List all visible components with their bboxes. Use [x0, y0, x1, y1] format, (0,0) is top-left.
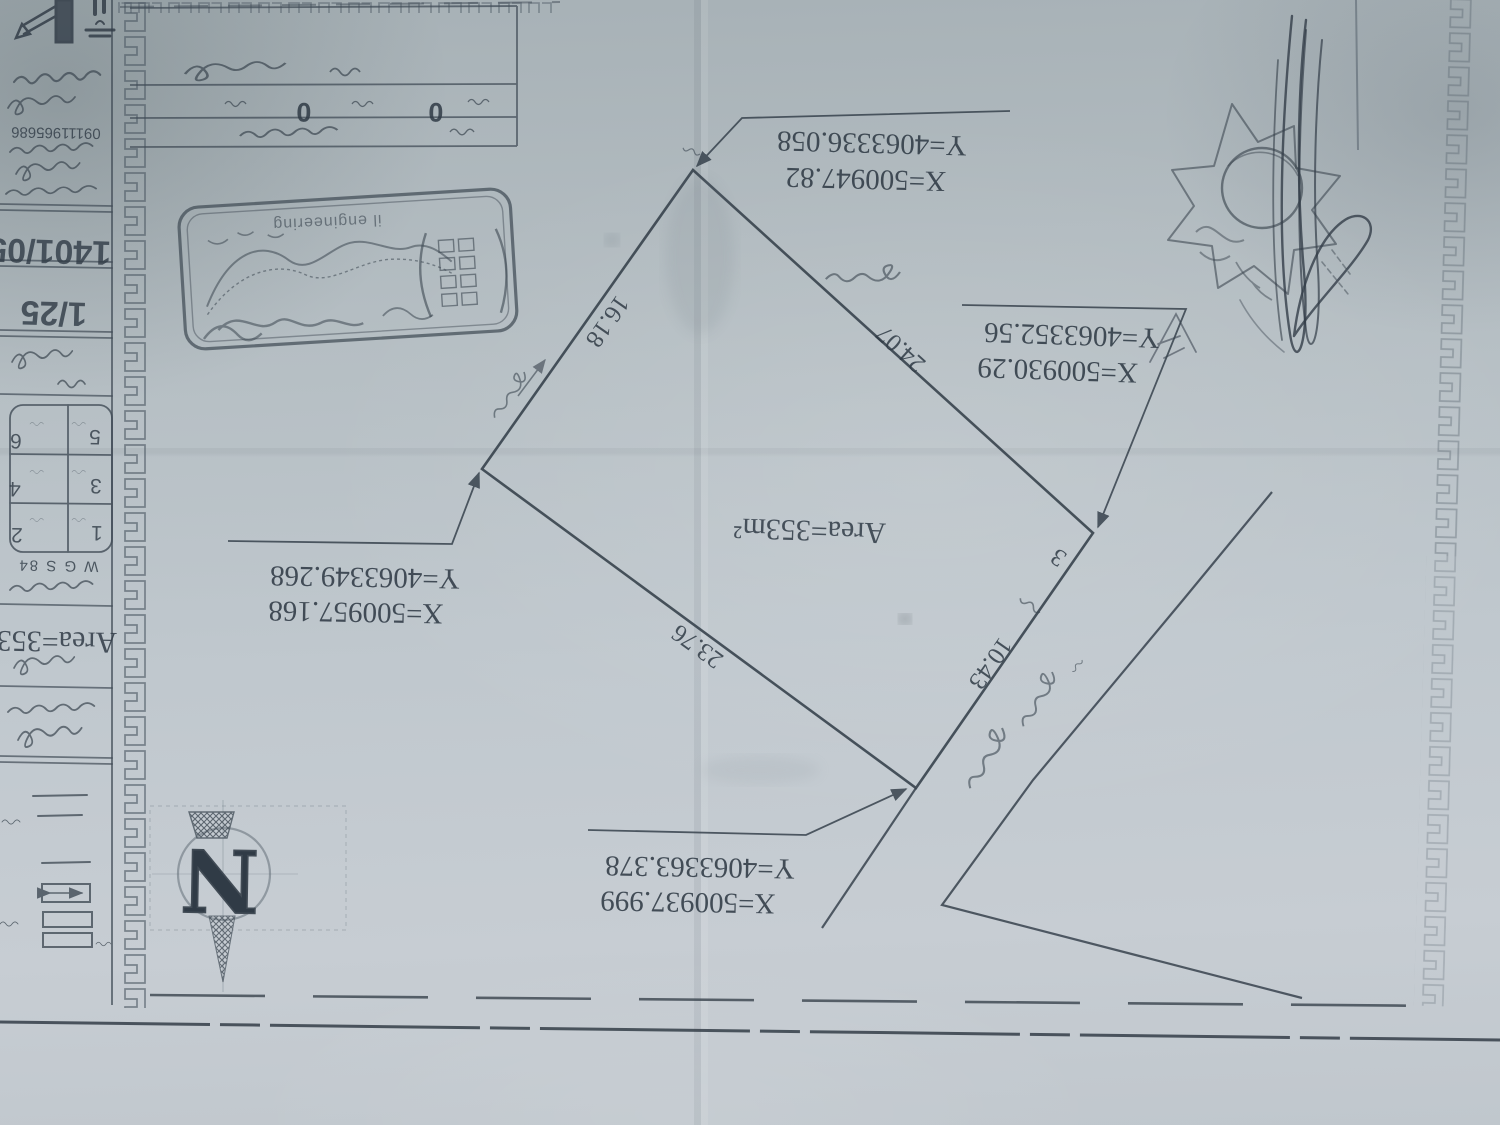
svg-text:5: 5 — [89, 425, 101, 448]
svg-text:3: 3 — [90, 474, 102, 497]
corner-left-y: Y=4063349.268 — [270, 559, 460, 594]
stamp-grid-motif — [418, 228, 509, 317]
paper-stains — [605, 178, 911, 784]
corner-right-y: Y=4063352.56 — [984, 316, 1160, 354]
edge-16: 16.18 — [580, 291, 634, 353]
north-arrow: N — [150, 800, 346, 992]
corner-right-x: X=500930.29 — [977, 351, 1139, 389]
edge-10: 10.43 — [963, 633, 1017, 695]
corner-bottom-y: Y=4063363.378 — [605, 849, 795, 884]
stamp-artwork — [198, 220, 456, 343]
ownership-table: 0 0 — [130, 6, 517, 147]
table-zero-2: 0 — [296, 97, 312, 127]
parcel-index-numbers: 5 6 3 4 1 2 — [9, 422, 103, 546]
photo-scene: 09111965686 1401/05 1/25 5 6 3 4 1 2 — [0, 0, 1500, 1125]
svg-text:1: 1 — [91, 521, 103, 544]
legend — [0, 795, 111, 947]
parcel-boundary — [482, 170, 1093, 788]
company-stamp: il engineering — [178, 188, 518, 350]
svg-text:2: 2 — [11, 523, 23, 546]
edge-lengths: 16.18 24.07 23.76 10.43 — [580, 291, 1017, 695]
legend-box-3 — [43, 933, 92, 947]
corner-left-x: X=500957.168 — [268, 594, 444, 629]
survey-drawing: 09111965686 1401/05 1/25 5 6 3 4 1 2 — [0, 0, 1500, 1125]
alley-lines — [822, 492, 1302, 998]
scale-value: 1/25 — [20, 293, 87, 333]
table-zero-1: 0 — [428, 97, 444, 127]
north-letter: N — [180, 828, 260, 930]
corner-top-x: X=500947.82 — [785, 161, 946, 197]
svg-text:6: 6 — [10, 429, 22, 452]
datum-label: W G S 84 — [17, 556, 98, 574]
edge-24: 24.07 — [871, 320, 931, 378]
area-short-label: Area=353 — [0, 624, 117, 659]
corner-top-y: Y=4063336.058 — [777, 125, 967, 162]
svg-text:4: 4 — [9, 477, 21, 500]
date-value: 1401/05 — [0, 230, 112, 271]
stamp-latin-text: il engineering — [272, 211, 382, 233]
legend-box-2 — [43, 912, 92, 927]
parcel-plan: Y=4063336.058 X=500947.82 Y=4063352.56 X… — [228, 111, 1302, 998]
corner-bottom-x: X=500937.999 — [600, 884, 776, 919]
survey-company-logo — [16, 0, 114, 42]
area-label: Area=353m² — [733, 511, 887, 549]
phone-number: 09111965686 — [11, 123, 101, 142]
title-block: 09111965686 1401/05 1/25 5 6 3 4 1 2 — [0, 0, 117, 947]
